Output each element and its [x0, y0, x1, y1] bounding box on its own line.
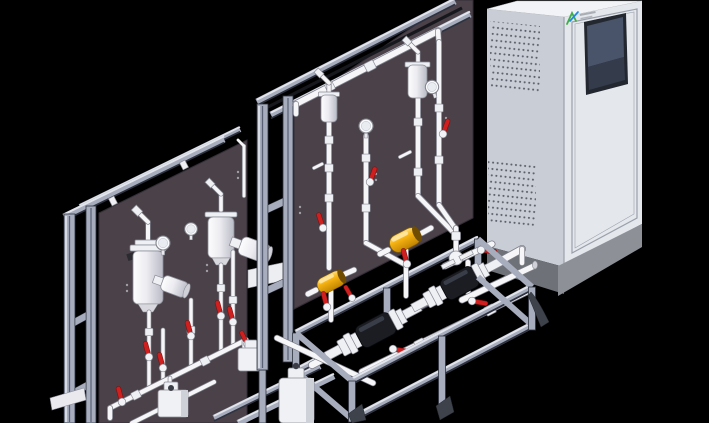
vent-grille-4 [488, 193, 536, 228]
pulsation-dampener-right-1 [321, 95, 337, 122]
vent-grille-1 [490, 21, 540, 60]
vent-grille-2 [490, 57, 540, 92]
hmi-screen [584, 13, 628, 95]
pulsation-dampener-right-2 [408, 65, 427, 98]
cad-render [0, 0, 709, 423]
render-stage [0, 0, 709, 423]
vent-grille-3 [488, 160, 536, 195]
